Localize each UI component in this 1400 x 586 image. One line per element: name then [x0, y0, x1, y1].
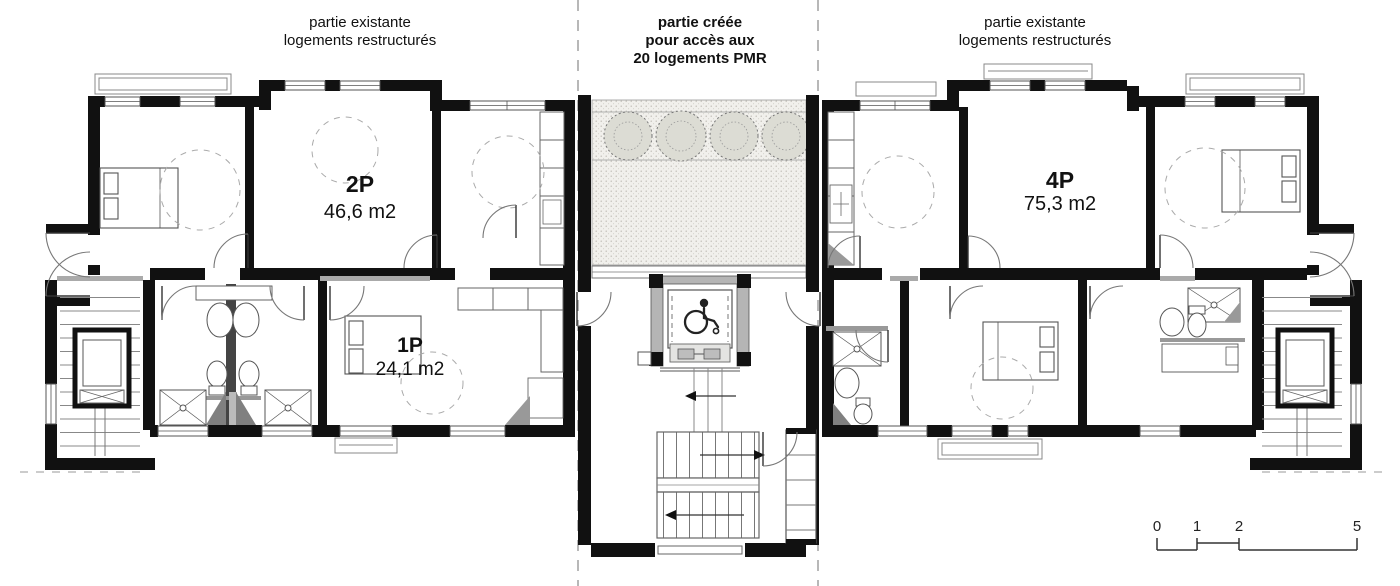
scale-tick-1: 1	[1187, 518, 1207, 535]
annotation-right: partie existante logements restructurés	[905, 14, 1165, 50]
toilet	[207, 361, 227, 387]
apartment-area: 75,3 m2	[985, 192, 1135, 216]
main-staircase	[657, 432, 765, 538]
apartment-type: 1P	[335, 334, 485, 358]
apartment-label-1p: 1P 24,1 m2	[335, 334, 485, 382]
apartment-area: 24,1 m2	[335, 358, 485, 382]
duct-shaft	[786, 428, 816, 545]
scale-bar	[1157, 538, 1357, 550]
tree-icon	[710, 112, 758, 160]
vanity	[196, 286, 272, 300]
sink	[207, 303, 233, 337]
sink	[835, 368, 859, 398]
annotation-line: logements restructurés	[905, 32, 1165, 50]
apartment-label-4p: 4P 75,3 m2	[985, 168, 1135, 216]
scale-tick-0: 0	[1147, 518, 1167, 535]
toilet-tank	[241, 386, 257, 395]
left-wing	[20, 74, 575, 472]
window	[658, 546, 742, 554]
center-block	[577, 95, 820, 557]
left-stairwell-elevator	[75, 330, 129, 406]
shower	[265, 390, 311, 425]
shower	[160, 390, 206, 425]
apartment-label-2p: 2P 46,6 m2	[290, 172, 430, 224]
floor-plan-sheet: partie existante logements restructurés …	[0, 0, 1400, 586]
pmr-elevator	[638, 274, 751, 371]
stair-direction-arrow	[685, 391, 736, 401]
apartment-type: 2P	[290, 172, 430, 196]
tree-icon	[604, 112, 652, 160]
toilet	[239, 361, 259, 387]
right-stairwell	[1262, 292, 1342, 456]
annotation-line: pour accès aux	[570, 32, 830, 50]
right-wing	[822, 64, 1382, 472]
bed	[1222, 150, 1300, 212]
annotation-line: partie existante	[905, 14, 1165, 32]
terrace	[592, 100, 810, 265]
annotation-line: 20 logements PMR	[570, 50, 830, 68]
toilet	[854, 404, 872, 424]
scale-tick-5: 5	[1347, 518, 1367, 535]
toilet-tank	[209, 386, 225, 395]
tree-icon	[656, 111, 706, 161]
scale-tick-2: 2	[1229, 518, 1249, 535]
apartment-type: 4P	[985, 168, 1135, 192]
sink	[233, 303, 259, 337]
apartment-area: 46,6 m2	[290, 200, 430, 224]
tree-icon	[762, 112, 810, 160]
bathroom	[1160, 288, 1245, 372]
floor-plan-drawing	[0, 0, 1400, 586]
sink	[1160, 308, 1184, 336]
bed	[983, 322, 1058, 380]
left-stairwell	[60, 292, 140, 456]
annotation-center: partie créée pour accès aux 20 logements…	[570, 14, 830, 68]
annotation-line: partie existante	[230, 14, 490, 32]
annotation-left: partie existante logements restructurés	[230, 14, 490, 50]
kitchen-counter	[540, 112, 564, 265]
bathroom	[826, 326, 888, 425]
annotation-line: logements restructurés	[230, 32, 490, 50]
annotation-line: partie créée	[570, 14, 830, 32]
landing-rails	[694, 368, 722, 432]
toilet	[1188, 313, 1206, 337]
right-stairwell-elevator	[1278, 330, 1332, 406]
bed	[100, 168, 178, 228]
